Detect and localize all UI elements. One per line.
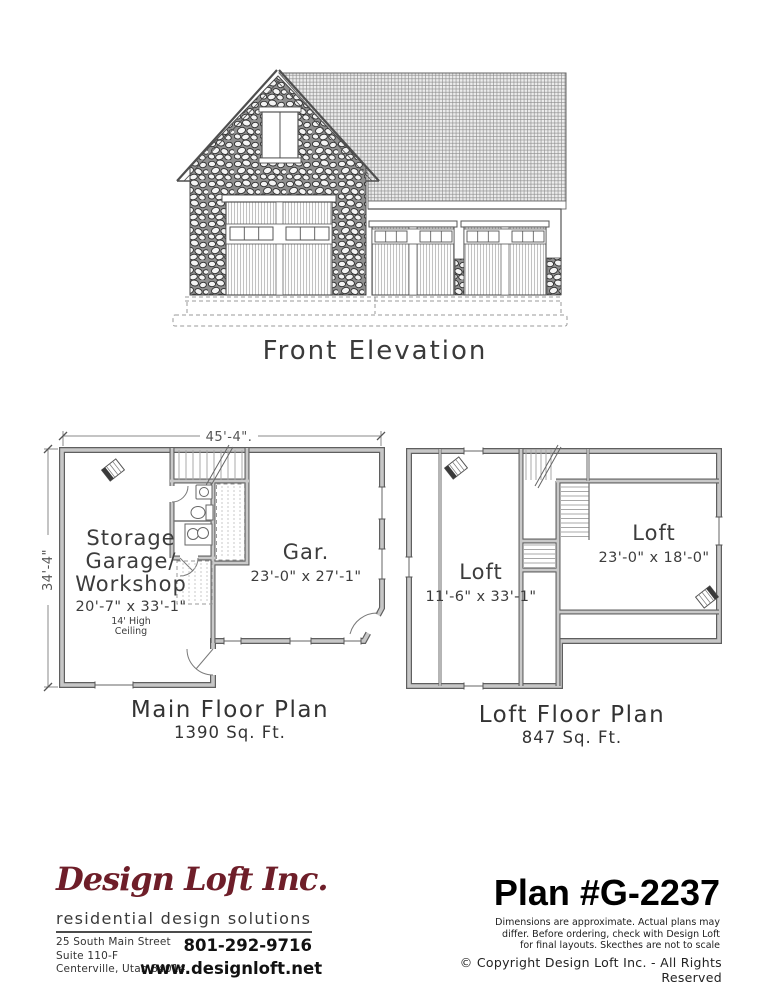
bathroom-fixtures (185, 485, 213, 545)
company-logo: Design Loft Inc. (56, 860, 327, 898)
loft-left-label: Loft (459, 560, 502, 584)
storage-room-label-2: Garage/ (86, 549, 177, 573)
light-fixture-icon (102, 459, 125, 481)
disclaimer-text: Dimensions are approximate. Actual plans… (470, 917, 720, 952)
garage-room-size: 23'-0" x 27'-1" (251, 569, 362, 585)
loft-floor-plan-area: 847 Sq. Ft. (395, 728, 749, 747)
garage-door-b (461, 221, 549, 295)
garage-room-label: Gar. (283, 540, 330, 564)
website-url[interactable]: www.designloft.net (140, 959, 312, 978)
loft-floor-plan-drawing: Loft 11'-6" x 33'-1" Loft 23'-0" x 18'-0… (400, 440, 760, 695)
svg-text:45'-4".: 45'-4". (206, 430, 253, 445)
garage-door-a (369, 221, 457, 295)
storage-room-label-3: Workshop (75, 572, 187, 596)
storage-room-label-1: Storage (86, 526, 175, 550)
dimension-height: 34'-4" (41, 445, 58, 691)
phone-number: 801-292-9716 (150, 936, 312, 955)
svg-text:34'-4": 34'-4" (41, 549, 56, 591)
dimension-width: 45'-4". (59, 430, 385, 446)
loft-left-size: 11'-6" x 33'-1" (426, 589, 537, 605)
copyright-notice: © Copyright Design Loft Inc. - All Right… (440, 955, 722, 985)
main-floor-plan-title: Main Floor Plan (35, 697, 425, 723)
light-fixture-icon (696, 586, 719, 608)
loft-plan-walls (409, 449, 719, 686)
company-tagline: residential design solutions (56, 909, 312, 933)
loft-right-label: Loft (632, 521, 675, 545)
loft-plan-windows (406, 448, 723, 690)
main-floor-plan-drawing: 45'-4". 34'-4" (35, 418, 405, 698)
front-elevation-drawing (160, 58, 590, 333)
garage-door-large (222, 195, 336, 295)
disclaimer-line-1: Dimensions are approximate. Actual plans… (470, 917, 720, 929)
loft-floor-plan-title: Loft Floor Plan (395, 702, 749, 728)
foundation-lines (173, 297, 567, 326)
loft-right-size: 23'-0" x 18'-0" (599, 550, 710, 566)
light-fixture-icon (445, 457, 468, 479)
main-floor-plan-area: 1390 Sq. Ft. (35, 723, 425, 742)
plan-sheet: Front Elevation 45'-4". 34'-4" (0, 0, 768, 994)
storage-room-note-2: Ceiling (115, 626, 147, 637)
front-elevation-title: Front Elevation (160, 336, 590, 366)
disclaimer-line-3: for final layouts. Skecthes are not to s… (470, 940, 720, 952)
gable-window (259, 107, 301, 163)
disclaimer-line-2: differ. Before ordering, check with Desi… (470, 929, 720, 941)
storage-room-size: 20'-7" x 33'-1" (76, 599, 187, 615)
plan-number: Plan #G-2237 (470, 872, 720, 914)
